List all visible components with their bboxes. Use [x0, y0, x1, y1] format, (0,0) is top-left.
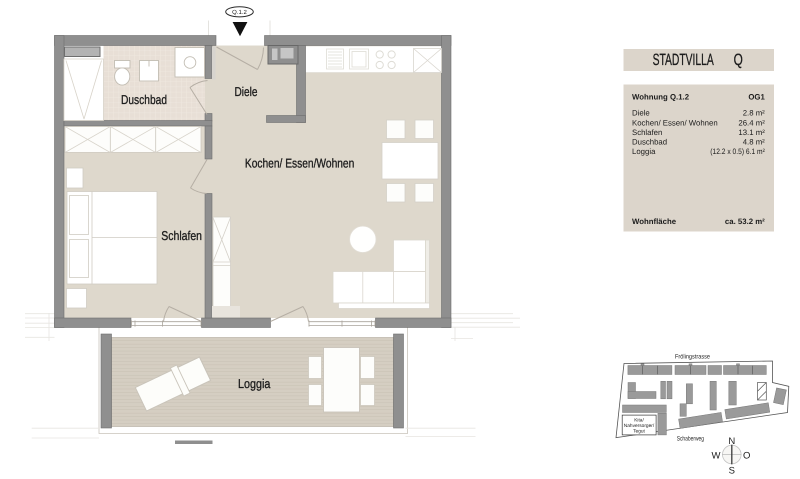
svg-text:O: O — [743, 450, 750, 461]
svg-text:Kochen/ Essen/Wohnen: Kochen/ Essen/Wohnen — [245, 156, 354, 171]
svg-text:S: S — [729, 466, 735, 477]
svg-text:ca. 53.2 m²: ca. 53.2 m² — [725, 217, 765, 226]
svg-text:Q.1.2: Q.1.2 — [232, 9, 247, 16]
svg-text:Diele: Diele — [632, 108, 650, 117]
svg-text:Diele: Diele — [235, 84, 258, 99]
svg-text:Schaberweg: Schaberweg — [677, 436, 705, 443]
svg-text:Nahversorger/: Nahversorger/ — [624, 423, 655, 429]
svg-text:4.8 m²: 4.8 m² — [743, 138, 765, 147]
svg-text:Duschbad: Duschbad — [632, 138, 667, 147]
svg-text:Wohnfläche: Wohnfläche — [632, 217, 677, 226]
svg-text:Wohnung Q.1.2: Wohnung Q.1.2 — [632, 93, 690, 102]
svg-text:Loggia: Loggia — [238, 376, 271, 391]
svg-text:Kita/: Kita/ — [634, 418, 644, 424]
svg-text:2.8 m²: 2.8 m² — [743, 108, 765, 117]
svg-text:Schlafen: Schlafen — [632, 128, 662, 137]
svg-text:26.4 m²: 26.4 m² — [738, 118, 765, 127]
svg-text:STADTVILLA: STADTVILLA — [653, 51, 714, 69]
svg-text:OG1: OG1 — [748, 93, 765, 102]
svg-text:Schlafen: Schlafen — [161, 228, 202, 243]
svg-text:Frölingstrasse: Frölingstrasse — [675, 354, 710, 361]
svg-text:Duschbad: Duschbad — [121, 92, 167, 107]
svg-text:W: W — [712, 450, 721, 461]
svg-text:(12.2 x 0.5) 6.1 m²: (12.2 x 0.5) 6.1 m² — [710, 147, 765, 156]
svg-text:Loggia: Loggia — [632, 147, 656, 156]
svg-text:13.1 m²: 13.1 m² — [738, 128, 765, 137]
svg-text:N: N — [728, 436, 735, 447]
svg-text:Q: Q — [734, 51, 743, 69]
svg-text:Kochen/ Essen/ Wohnen: Kochen/ Essen/ Wohnen — [632, 118, 718, 127]
svg-text:Tegut: Tegut — [633, 429, 645, 435]
